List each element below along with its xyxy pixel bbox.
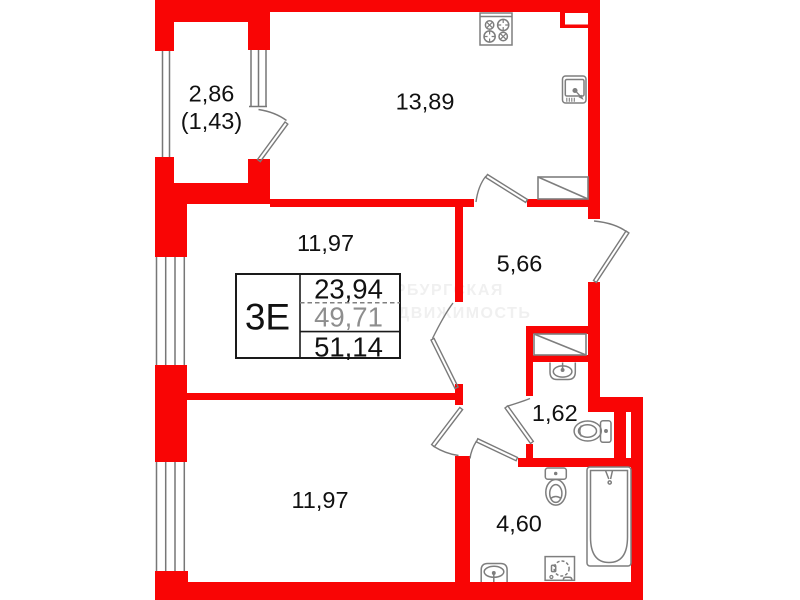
svg-text:13,89: 13,89 xyxy=(396,89,455,115)
svg-text:11,97: 11,97 xyxy=(297,230,354,256)
svg-text:23,94: 23,94 xyxy=(314,274,383,305)
svg-text:49,71: 49,71 xyxy=(314,301,383,332)
svg-text:5,66: 5,66 xyxy=(497,251,543,277)
svg-text:(1,43): (1,43) xyxy=(181,108,242,134)
svg-text:2,86: 2,86 xyxy=(189,81,235,107)
svg-text:3Е: 3Е xyxy=(245,297,290,338)
svg-text:4,60: 4,60 xyxy=(496,511,542,537)
svg-text:11,97: 11,97 xyxy=(291,487,348,513)
svg-text:51,14: 51,14 xyxy=(314,332,383,363)
svg-text:1,62: 1,62 xyxy=(532,400,578,426)
